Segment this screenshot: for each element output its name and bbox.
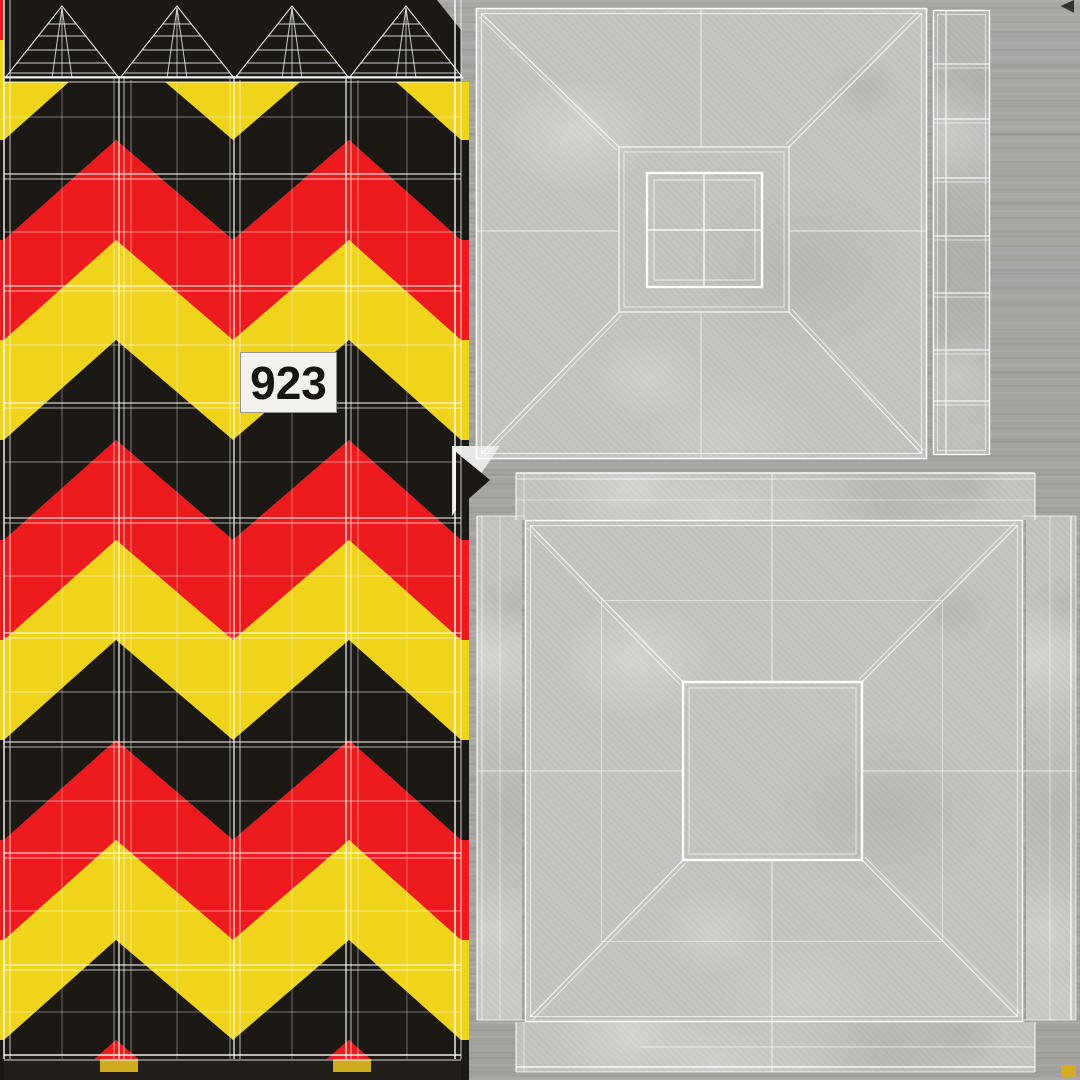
wireframe-overlay — [0, 0, 1080, 1080]
strip-wireframe — [933, 10, 990, 455]
top-block-wireframe — [477, 9, 927, 459]
bottom-block-wireframe — [477, 473, 1076, 1072]
model-number-label: 923 — [240, 352, 337, 413]
texture-sheet: 923 — [0, 0, 1080, 1080]
